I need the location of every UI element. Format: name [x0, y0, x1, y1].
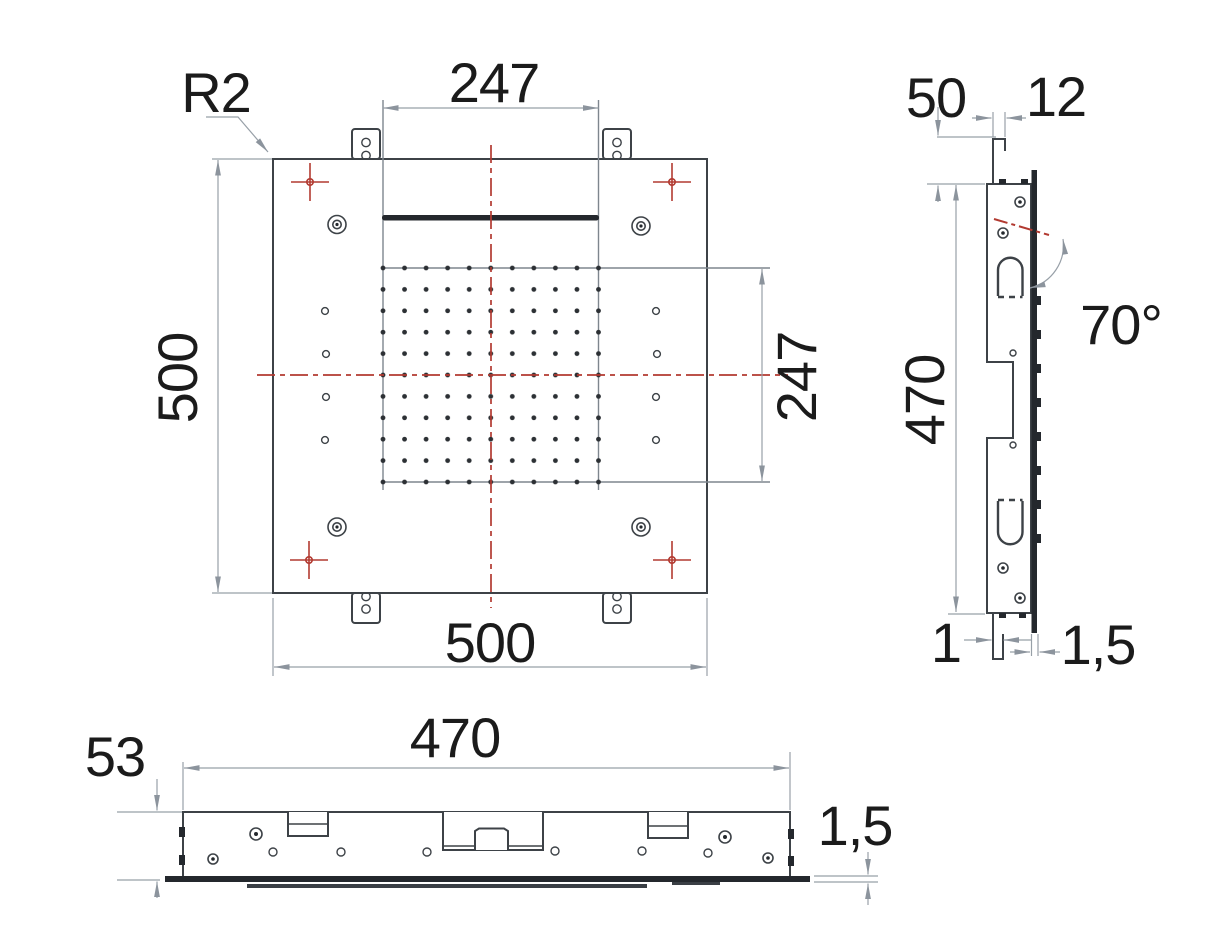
dim-label-front-height: 53 [85, 725, 145, 788]
dim-ceiling-offset: 50 [906, 66, 996, 202]
nozzle-ticks [1037, 296, 1041, 543]
panel-layer [247, 884, 647, 888]
side-view: 50 12 470 1 1,5 [893, 65, 1162, 676]
mounting-tab [603, 129, 631, 159]
dim-frame-height: 470 [893, 185, 985, 614]
top-view: 247 500 500 247 R2 [146, 51, 828, 676]
center-recess [443, 812, 543, 850]
bend-notch-right [648, 812, 688, 838]
mounting-tab [352, 593, 380, 623]
dim-label-panel-thickness-side: 1,5 [1061, 613, 1136, 676]
page-root: 247 500 500 247 R2 [0, 0, 1212, 952]
mounting-tab [603, 593, 631, 623]
dim-label-panel-thickness-front: 1,5 [818, 794, 893, 857]
dim-label-hook-width: 12 [1026, 65, 1086, 128]
dim-outer-width: 500 [273, 598, 707, 676]
dim-hook-width: 12 [972, 65, 1086, 137]
dim-label-outer-width: 500 [445, 611, 535, 674]
radius-callout: R2 [181, 61, 268, 152]
dim-label-inner-height: 247 [765, 332, 828, 422]
dim-label-radius: R2 [181, 61, 251, 124]
dim-inner-width: 247 [383, 51, 599, 114]
center-tab [475, 829, 508, 851]
panel-edge [1032, 170, 1038, 633]
front-view: 53 470 1,5 [85, 706, 893, 905]
dim-label-hook-thickness: 1 [931, 611, 961, 674]
dim-label-spray-angle: 70° [1080, 293, 1162, 356]
panel-layer [672, 882, 720, 885]
bend-notch-left [288, 812, 328, 836]
dim-label-frame-height: 470 [893, 355, 956, 445]
dim-label-outer-height: 500 [146, 333, 209, 423]
frame-body [987, 184, 1031, 613]
dim-hook-thickness: 1 [931, 611, 1032, 674]
technical-drawing: 247 500 500 247 R2 [0, 0, 1212, 952]
bottom-hook [993, 613, 1003, 659]
dim-front-width: 470 [183, 706, 790, 810]
dim-label-inner-width: 247 [449, 51, 539, 114]
dim-front-height: 53 [85, 725, 182, 898]
dim-label-ceiling-offset: 50 [906, 66, 966, 129]
dim-panel-thickness-front: 1,5 [814, 794, 892, 905]
bottom-panel [165, 876, 810, 882]
dim-outer-height: 500 [146, 159, 272, 593]
ceiling-hook [993, 139, 1005, 184]
dim-inner-height: 247 [762, 269, 828, 481]
dim-label-front-width: 470 [410, 706, 500, 769]
mounting-tab [352, 129, 380, 159]
dim-panel-thickness-side: 1,5 [1010, 613, 1135, 676]
